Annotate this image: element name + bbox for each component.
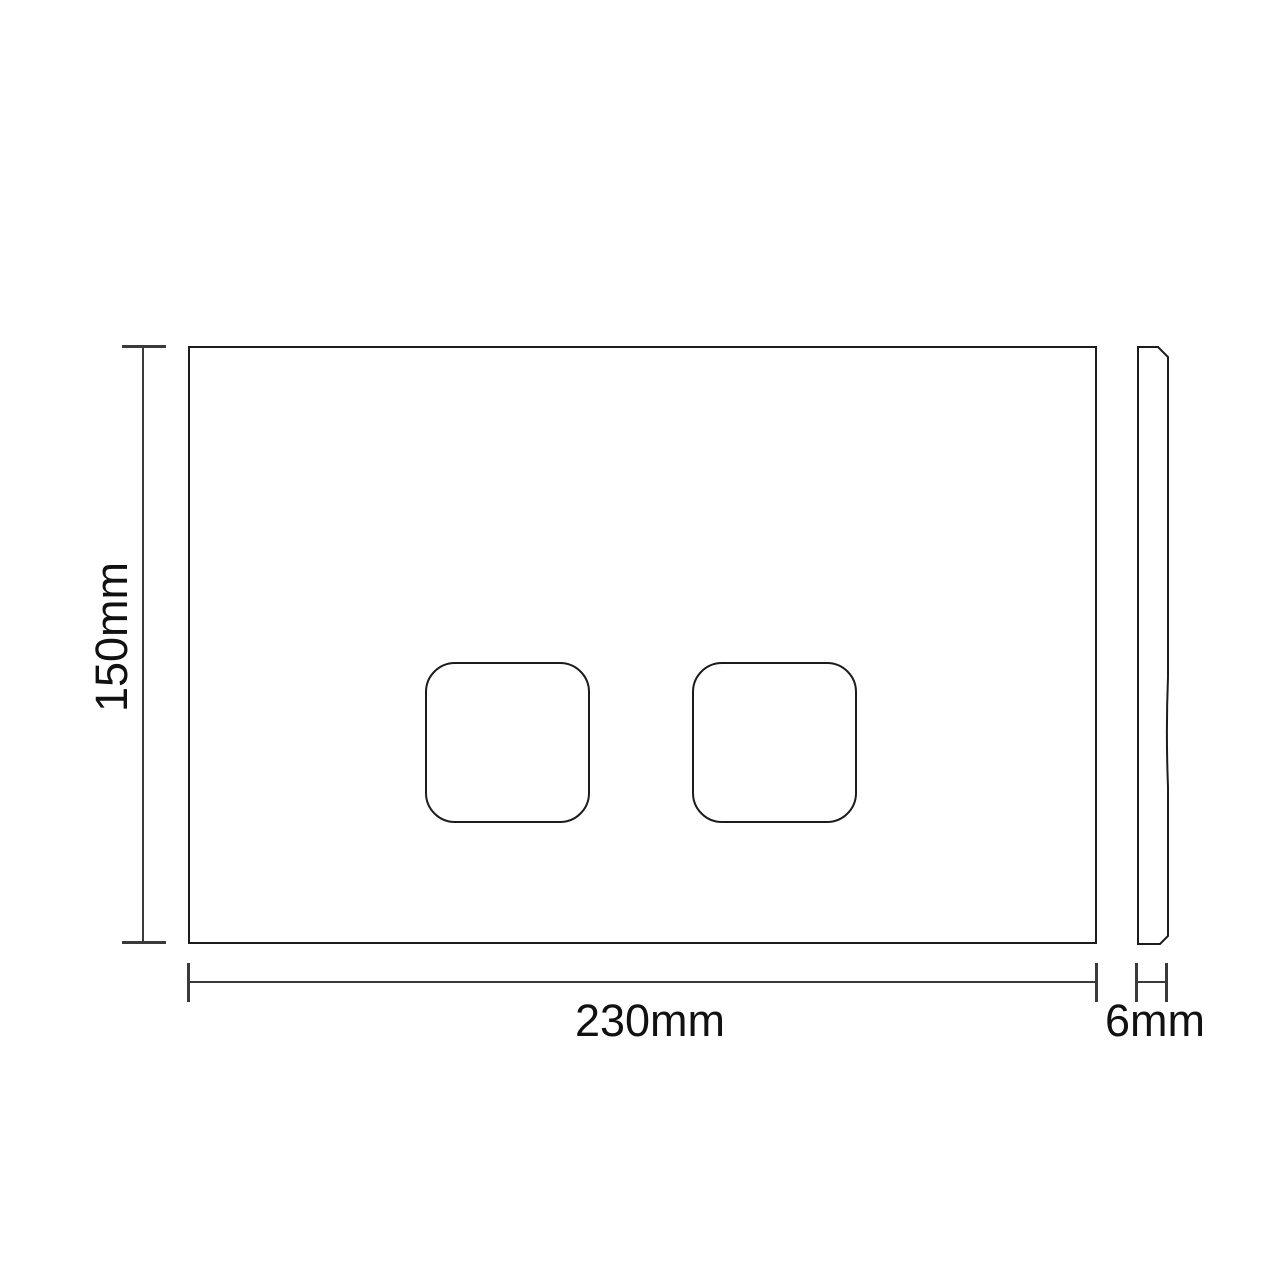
thickness-dimension-line	[1137, 981, 1168, 983]
technical-drawing-canvas: 150mm 230mm 6mm	[0, 0, 1280, 1280]
height-dimension-tick-top	[122, 345, 166, 348]
thickness-dimension-label: 6mm	[1045, 996, 1265, 1046]
touch-button-right	[692, 662, 857, 823]
width-dimension-line	[188, 981, 1097, 983]
width-dimension-label: 230mm	[540, 996, 760, 1046]
side-view-outline	[1138, 347, 1168, 944]
height-dimension-tick-bottom	[122, 941, 166, 944]
side-view-profile	[1136, 345, 1170, 947]
height-dimension-line	[142, 347, 144, 943]
touch-button-left	[425, 662, 590, 823]
width-dimension-tick-left	[187, 963, 190, 1002]
front-view-plate	[188, 346, 1097, 944]
height-dimension-label: 150mm	[87, 527, 137, 747]
